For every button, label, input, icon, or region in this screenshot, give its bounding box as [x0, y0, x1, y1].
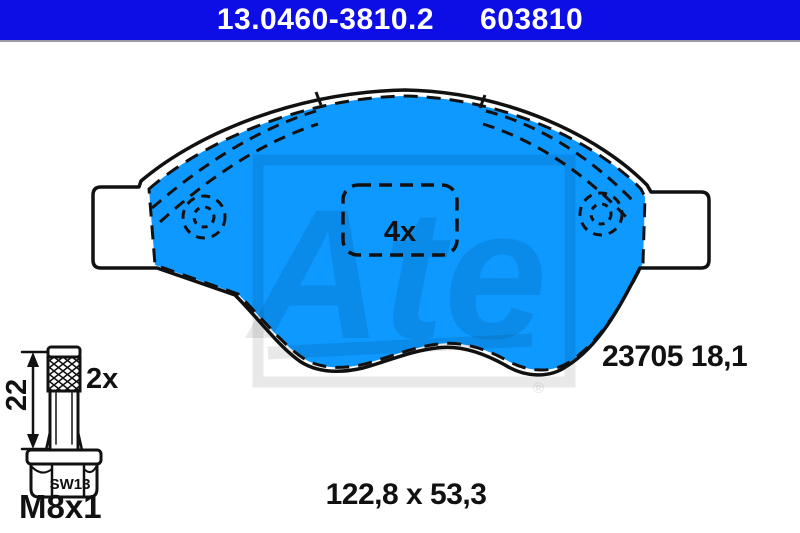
- pad-dimensions-label: 122,8 x 53,3: [326, 478, 487, 511]
- watermark-registered-mark: ®: [533, 380, 544, 397]
- bolt-flange: [27, 450, 101, 464]
- brake-pad-drawing: Ate ® 4x: [93, 90, 747, 511]
- bolt-length-label: 22: [1, 379, 33, 411]
- ate-watermark: Ate ®: [245, 160, 570, 397]
- dimension-arrow-up: [27, 352, 39, 367]
- bolt-shaft: [50, 391, 78, 450]
- header-bar: 13.0460-3810.2 603810: [0, 0, 800, 42]
- article-code: 603810: [480, 0, 583, 40]
- part-number: 13.0460-3810.2: [217, 0, 434, 40]
- bolt-quantity-label: 2x: [86, 363, 118, 395]
- bolt-thread-label: M8x1: [19, 488, 102, 525]
- product-image-page: Ate ® 4x: [0, 0, 800, 533]
- mounting-bolt-drawing: 22 SW13 2x M8x1: [1, 347, 118, 525]
- bolt-knurl-section: [48, 357, 80, 391]
- dimension-arrow-down: [27, 434, 39, 449]
- pad-quantity-label: 4x: [384, 216, 416, 248]
- pad-reference-label: 23705 18,1: [602, 340, 747, 373]
- technical-drawing: Ate ® 4x: [0, 0, 800, 533]
